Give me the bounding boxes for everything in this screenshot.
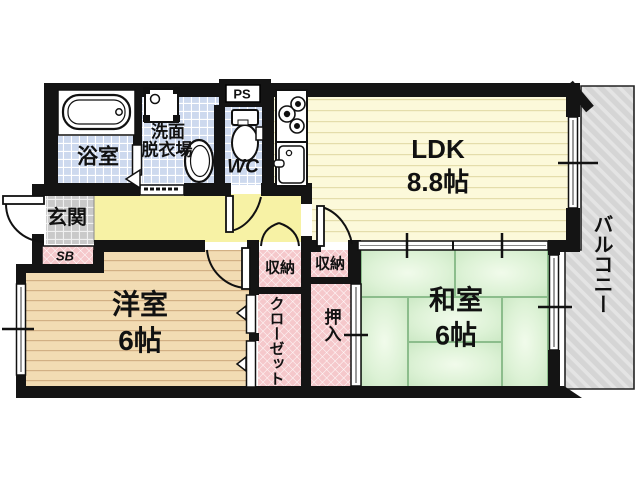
floor-plan-graphics bbox=[0, 0, 640, 480]
wc-label: WC bbox=[227, 158, 259, 177]
washing-machine-icon bbox=[143, 87, 180, 122]
ldk-label: LDK bbox=[411, 136, 464, 162]
floor-plan: 浴室 洗面 脱衣場 WC PS LDK 8.8帖 玄関 SB 洋室 6帖 和室 … bbox=[0, 0, 640, 480]
washroom-label-2: 脱衣場 bbox=[142, 142, 193, 159]
balcony-label: バルコニー bbox=[591, 214, 611, 314]
kitchen-sink-icon bbox=[274, 146, 304, 183]
kitchen-unit bbox=[274, 90, 307, 186]
hall-floor bbox=[93, 194, 301, 242]
pipe-space-label: PS bbox=[233, 88, 250, 101]
bathtub-icon bbox=[58, 90, 135, 135]
shoe-box-label: SB bbox=[56, 250, 74, 263]
washroom-sliding-door bbox=[140, 185, 184, 195]
storage-right-label: 収納 bbox=[315, 257, 345, 272]
bathroom-label: 浴室 bbox=[77, 147, 119, 168]
washroom-label-1: 洗面 bbox=[151, 124, 185, 141]
japanese-room-label: 和室 bbox=[429, 288, 483, 315]
ldk-size-label: 8.8帖 bbox=[407, 169, 469, 195]
oshiire-label: 押入 bbox=[323, 308, 340, 342]
japanese-room-size: 6帖 bbox=[435, 323, 477, 350]
storage-left-label: 収納 bbox=[265, 261, 295, 276]
closet-label: クローゼット bbox=[269, 296, 284, 386]
western-room-size: 6帖 bbox=[118, 327, 162, 355]
western-room-label: 洋室 bbox=[112, 291, 168, 319]
tatami-mats bbox=[361, 249, 548, 387]
entrance-label: 玄関 bbox=[47, 208, 87, 228]
